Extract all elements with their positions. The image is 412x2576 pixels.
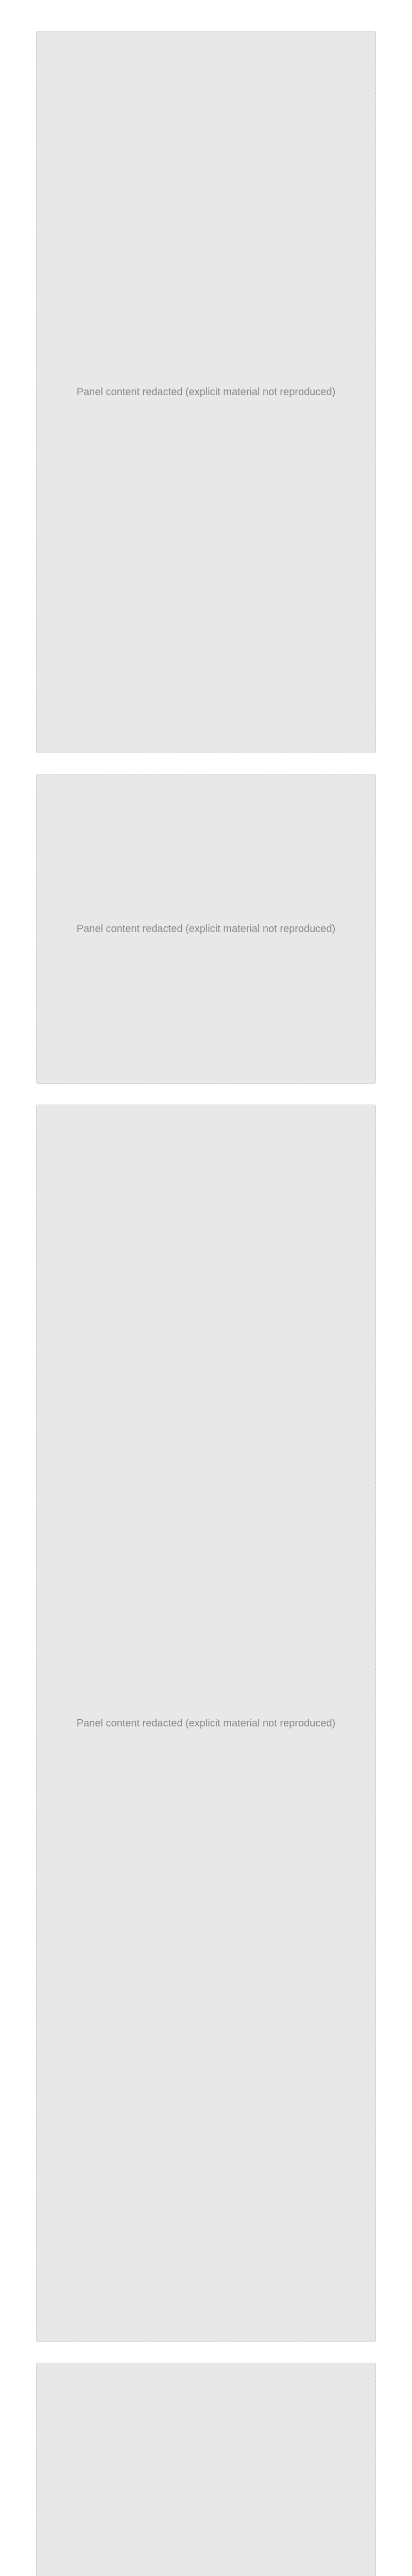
comic-panel: Panel content redacted (explicit materia…: [36, 31, 376, 753]
comic-panel: Panel content redacted (explicit materia…: [36, 774, 376, 1084]
comic-panel: Panel content redacted (explicit materia…: [36, 1105, 376, 2342]
comic-panel: Panel content redacted (explicit materia…: [36, 2363, 376, 2576]
webtoon-strip: Panel content redacted (explicit materia…: [0, 0, 412, 2576]
